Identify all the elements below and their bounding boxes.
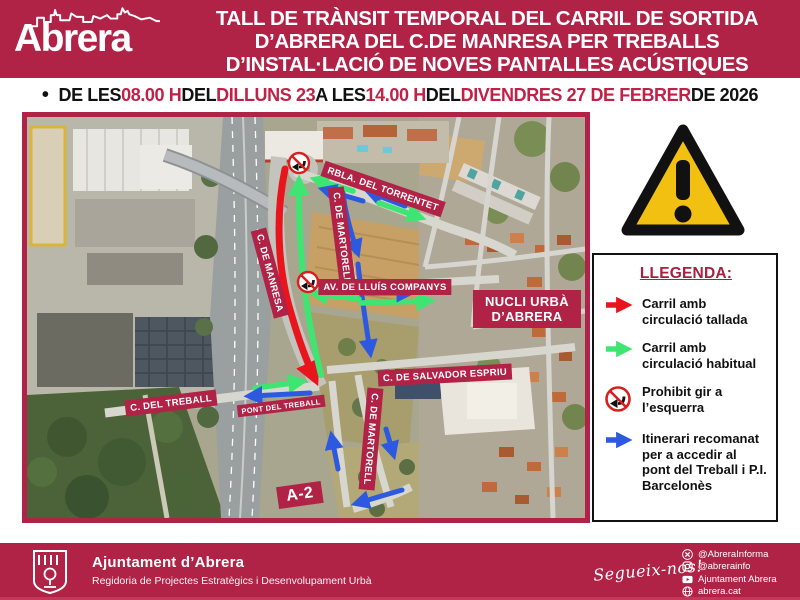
date-text-part: DEL [426,85,461,106]
traffic-notice-poster: { "logo": { "name": "Abrera" }, "header"… [0,0,800,600]
org-department: Regidoria de Projectes Estratègics i Des… [92,575,372,587]
date-text-part: A LES [315,85,365,106]
no-left-turn-sign [298,272,318,292]
social-handle: Ajuntament Abrera [698,574,777,585]
logo-wordmark: Abrera [14,24,174,54]
legend-item-label: Itinerari recomanat per a accedir al pon… [642,431,768,493]
legend-item-label: Carril amb circulació tallada [642,296,768,327]
area-label-nucli-urba: NUCLI URBÀ D’ABRERA [473,290,581,328]
satellite-map: C. DE MANRESA RBLA. DEL TORRENTET C. DE … [22,112,590,523]
instagram-icon [682,561,693,572]
social-links: @AbreraInforma @abrerainfo Ajuntament Ab… [682,548,777,598]
date-start-day: DILLUNS 23 [216,85,315,106]
bullet-point: • [42,84,49,107]
youtube-icon [682,574,693,585]
recommended-route-arrow [251,393,310,396]
legend-item-recommended-route: Itinerari recomanat per a accedir al pon… [604,431,768,493]
header-band: Abrera TALL DE TRÀNSIT TEMPORAL DEL CARR… [0,0,800,78]
globe-icon [682,586,693,597]
street-label-companys: AV. DE LLUÍS COMPANYS [318,279,451,295]
date-text-part: DE LES [58,85,121,106]
legend-item-no-left-turn: Prohibit gir a l’esquerra [604,384,768,418]
title-line-1: TALL DE TRÀNSIT TEMPORAL DEL CARRIL DE S… [180,7,794,30]
legend-item-closed-lane: Carril amb circulació tallada [604,296,768,327]
social-handle: @abrerainfo [698,561,750,572]
legend-item-label: Prohibit gir a l’esquerra [642,384,768,415]
legend-item-normal-lane: Carril amb circulació habitual [604,340,768,371]
x-icon [682,549,693,560]
blue-arrow-icon [604,431,642,453]
social-row-youtube: Ajuntament Abrera [682,573,777,585]
legend-title: LLEGENDA: [604,265,768,283]
legend-box: LLEGENDA: Carril amb circulació tallada … [592,253,778,522]
warning-triangle-icon [617,118,749,244]
coat-of-arms [26,549,74,600]
date-end-day: DIVENDRES 27 DE FEBRER [461,85,691,106]
social-row-instagram: @abrerainfo [682,561,777,573]
social-row-web: abrera.cat [682,586,777,598]
green-arrow-icon [604,340,642,362]
title-line-2: D’ABRERA DEL C.DE MANRESA PER TREBALLS [180,30,794,53]
social-row-x: @AbreraInforma [682,548,777,560]
date-start-time: 08.00 H [121,85,181,106]
date-text-part: DE 2026 [691,85,758,106]
date-text-part: DEL [181,85,216,106]
red-arrow-icon [604,296,642,318]
abrera-logo: Abrera [14,4,174,76]
date-end-time: 14.00 H [366,85,426,106]
social-handle: @AbreraInforma [698,549,768,560]
no-left-turn-sign [289,153,309,173]
org-name: Ajuntament d’Abrera [92,554,372,571]
title-line-3: D’INSTAL·LACIÓ DE NOVES PANTALLES ACÚSTI… [180,53,794,76]
org-block: Ajuntament d’Abrera Regidoria de Project… [92,554,372,587]
legend-item-label: Carril amb circulació habitual [642,340,768,371]
no-left-turn-icon [604,384,642,418]
poster-title: TALL DE TRÀNSIT TEMPORAL DEL CARRIL DE S… [180,7,794,76]
footer-band: Ajuntament d’Abrera Regidoria de Project… [0,543,800,600]
date-strip: • DE LES 08.00 H DEL DILLUNS 23 A LES 14… [0,78,800,112]
social-handle: abrera.cat [698,586,741,597]
